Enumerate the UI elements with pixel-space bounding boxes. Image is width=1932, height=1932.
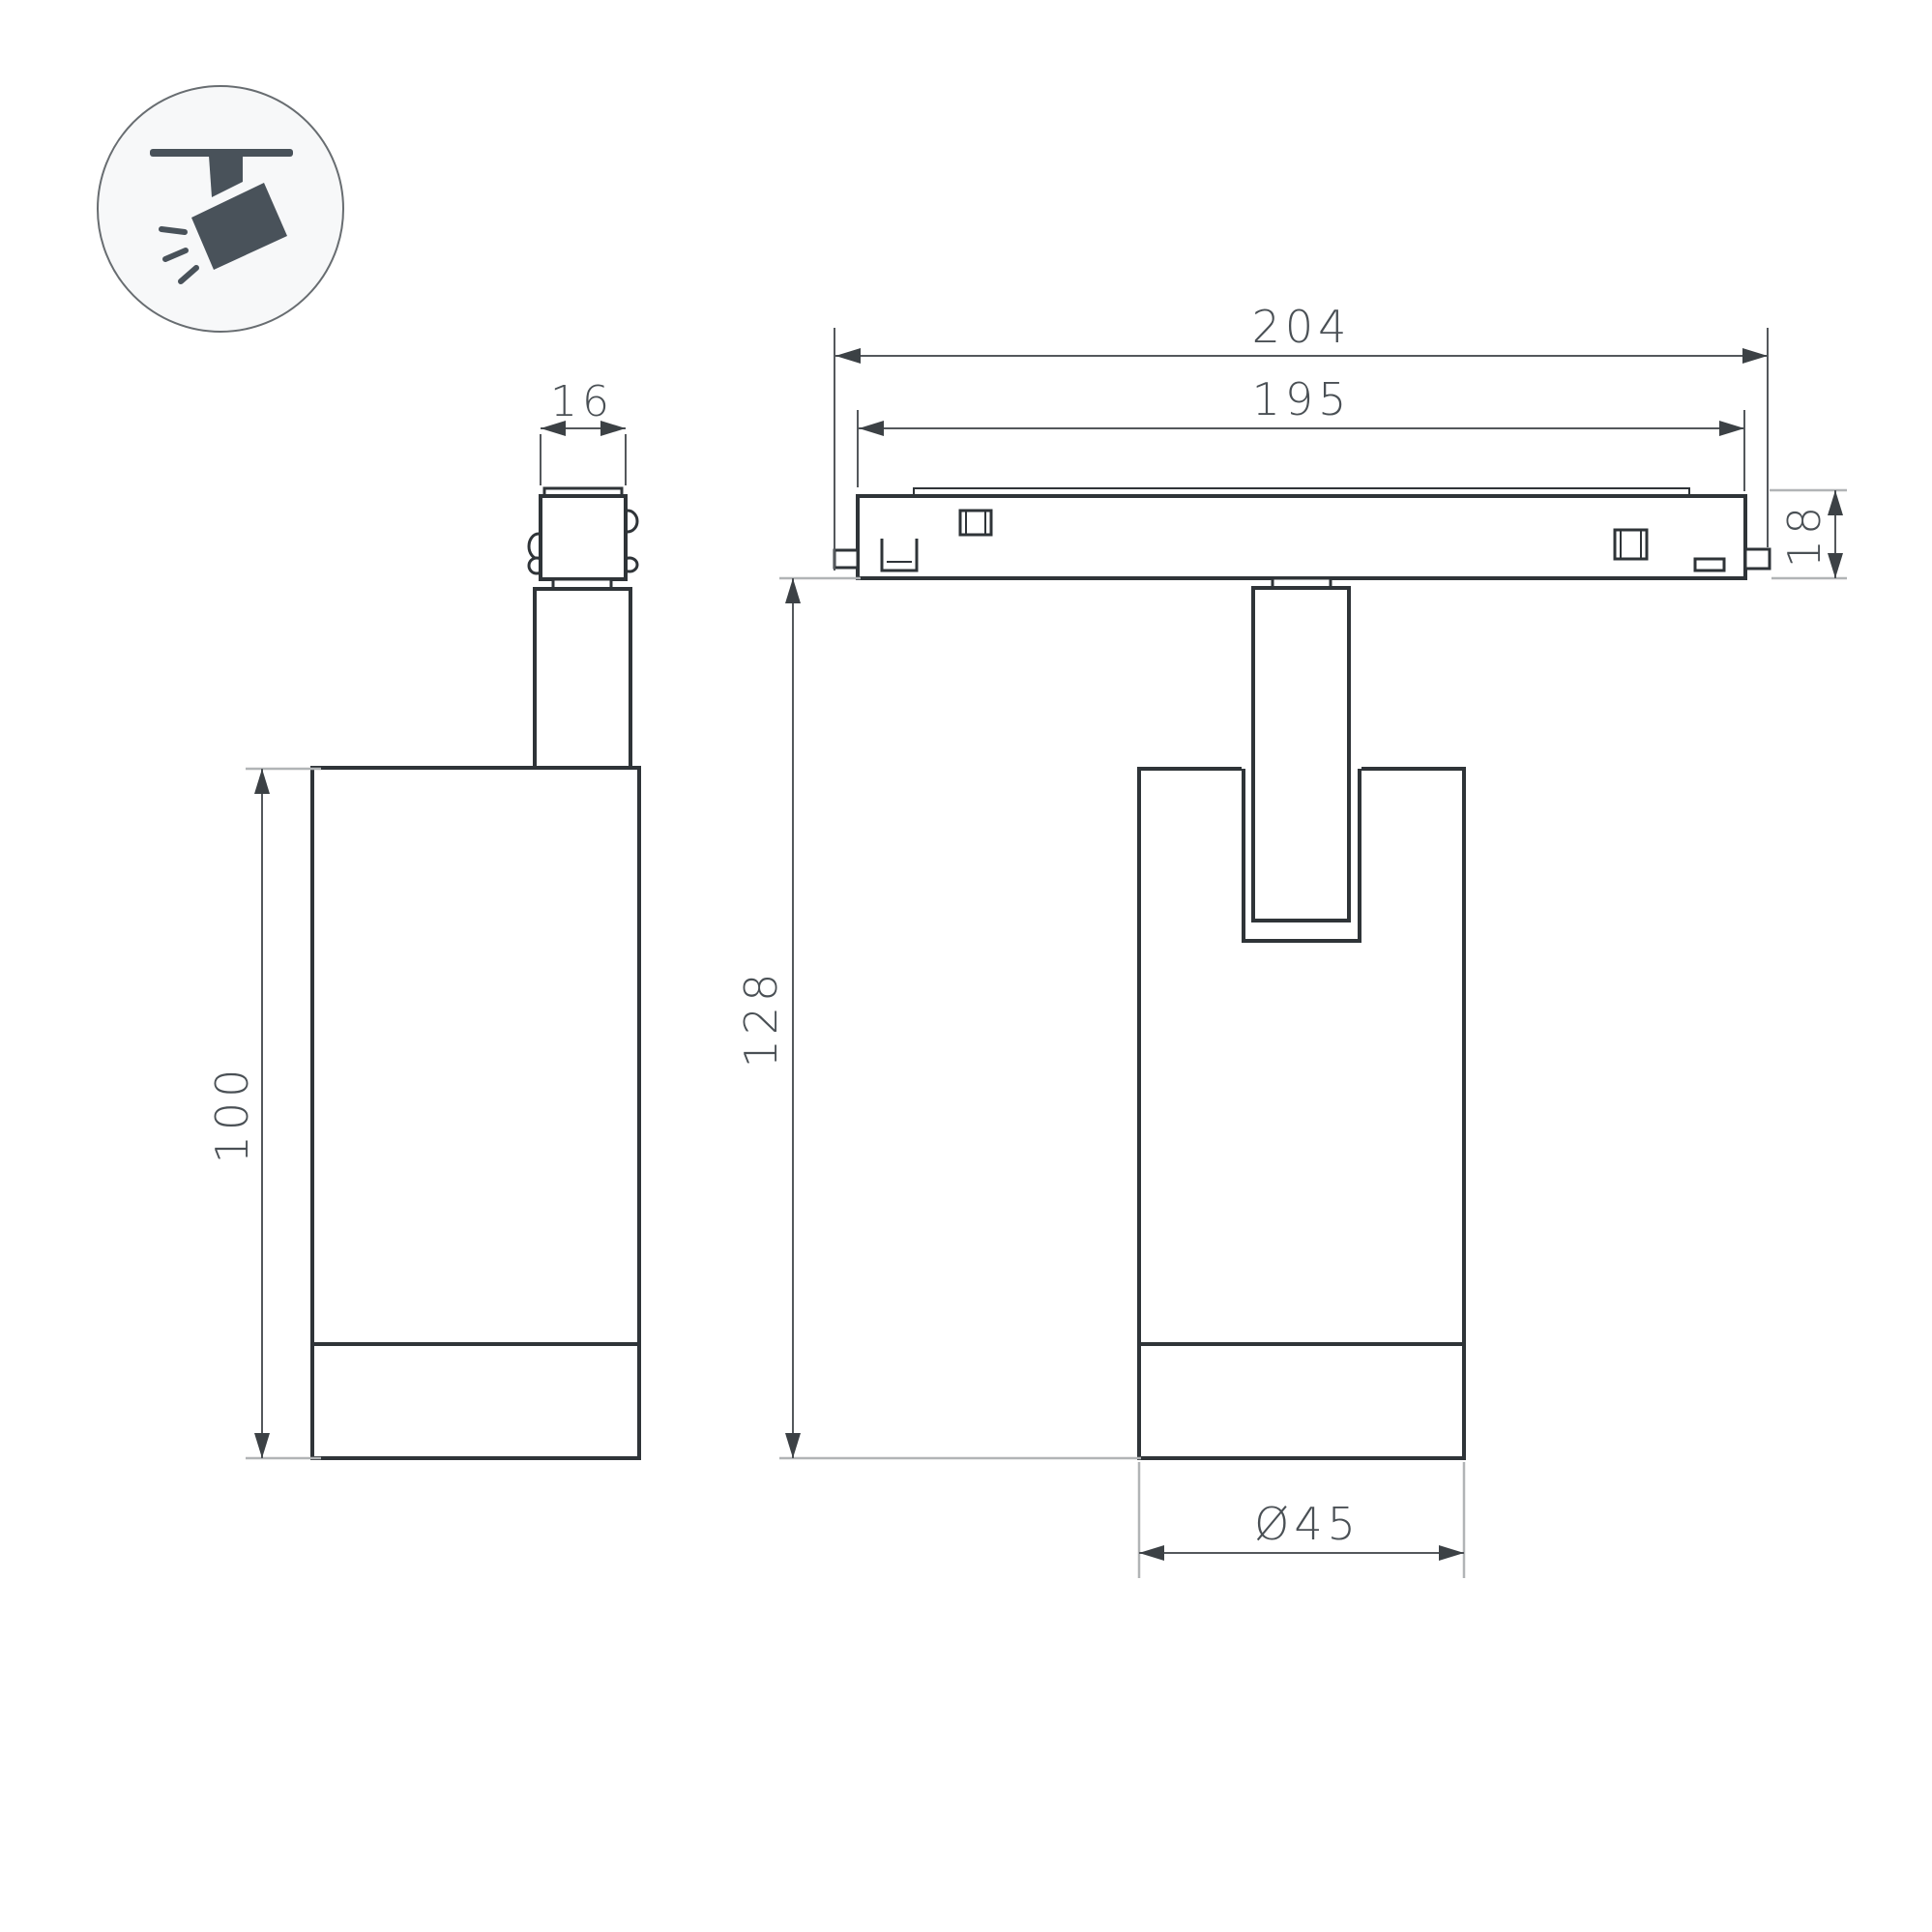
track-connector-box <box>541 496 626 579</box>
track-end-tab-right <box>1745 549 1770 569</box>
pivot-stem <box>535 589 630 769</box>
dim-label: 128 <box>735 969 787 1068</box>
dimension-drawing-page: 16 100 <box>0 0 1932 1932</box>
dim-track-height: 18 <box>1770 490 1847 578</box>
arrowhead-up <box>785 578 801 603</box>
pivot-stem <box>1253 588 1349 921</box>
arrowhead-right <box>1719 421 1744 436</box>
arrowhead-left <box>1139 1545 1164 1561</box>
dim-overall-height: 128 <box>735 578 1141 1458</box>
light-ray-icon <box>161 229 185 232</box>
dim-label: 204 <box>1252 301 1352 353</box>
legend-icon <box>98 86 343 332</box>
dim-connector-width: 16 <box>541 377 626 485</box>
arrowhead-down <box>785 1433 801 1458</box>
dim-label: 16 <box>550 377 614 426</box>
front-view: 204 195 18 128 <box>735 301 1847 1578</box>
dim-rail-length: 195 <box>858 373 1744 491</box>
icon-ceiling-track-bar <box>150 149 293 157</box>
arrowhead-down <box>254 1433 270 1458</box>
track-rail <box>858 496 1745 578</box>
arrowhead-up <box>254 769 270 794</box>
arrowhead-left <box>859 421 884 436</box>
arrowhead-right <box>1742 348 1768 364</box>
dim-label: Ø45 <box>1254 1498 1361 1550</box>
dimension-drawing: 16 100 <box>0 0 1932 1932</box>
dim-body-diameter: Ø45 <box>1139 1462 1464 1578</box>
side-view: 16 100 <box>206 377 639 1458</box>
dim-label: 195 <box>1252 373 1352 425</box>
arrowhead-right <box>1439 1545 1464 1561</box>
dim-label: 100 <box>206 1065 258 1164</box>
arrowhead-left <box>835 348 861 364</box>
dim-body-height: 100 <box>206 769 321 1458</box>
spotlight-body <box>312 768 639 1458</box>
track-end-tab-left <box>834 550 858 568</box>
dim-label: 18 <box>1778 502 1830 569</box>
